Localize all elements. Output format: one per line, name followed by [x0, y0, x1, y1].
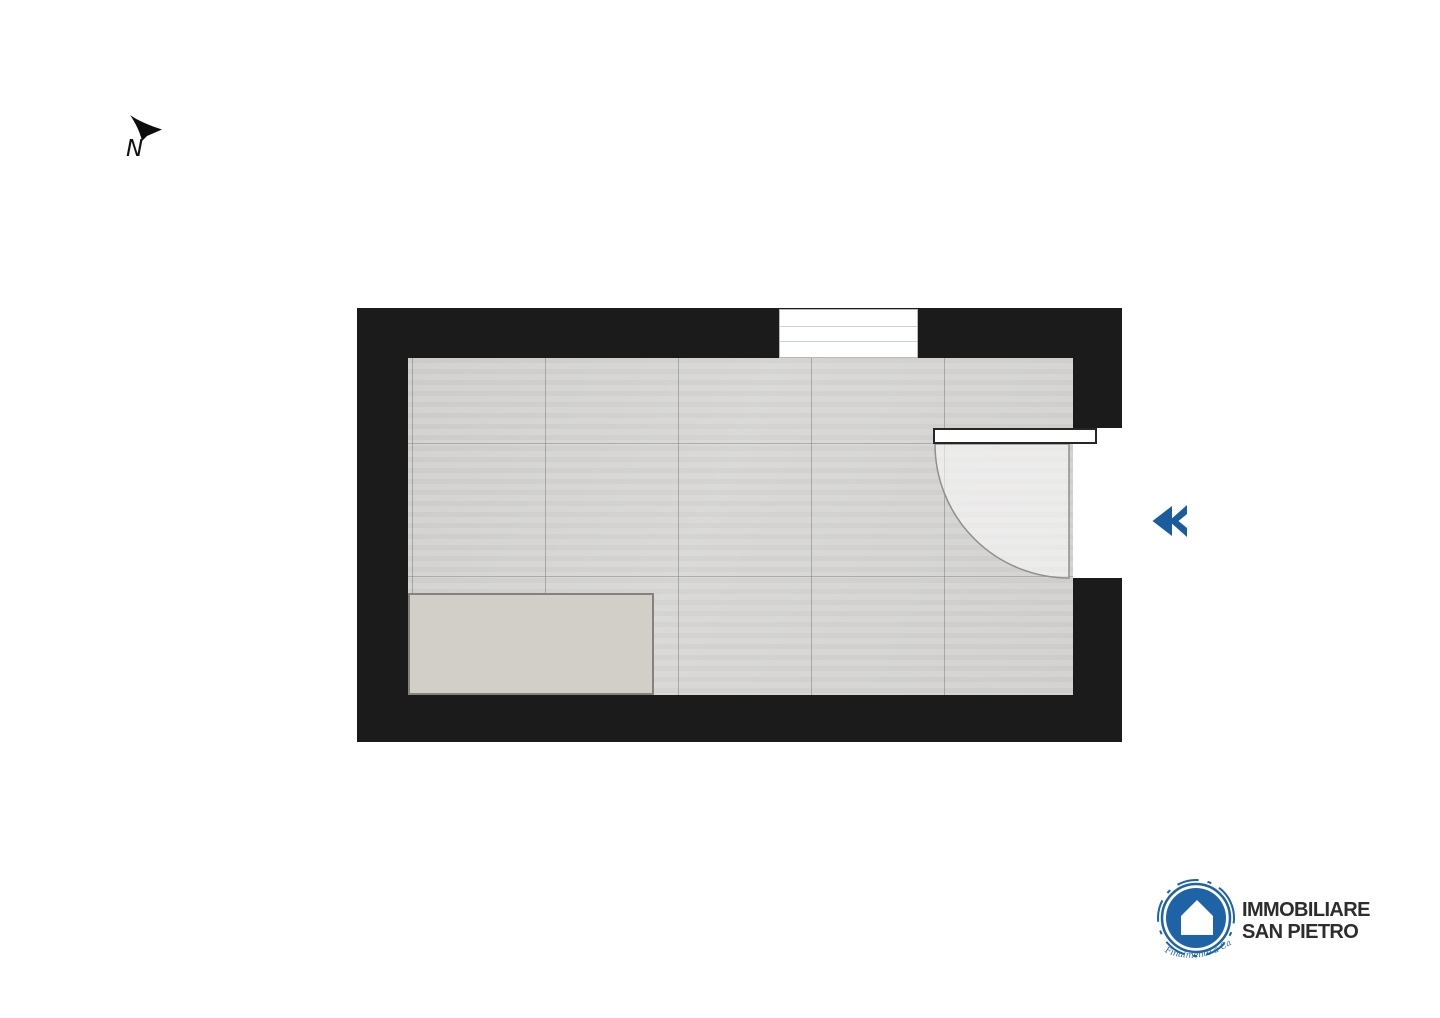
window [779, 309, 918, 358]
floor-plan [357, 308, 1122, 742]
furniture-block [408, 593, 654, 695]
window-pane-line [780, 341, 917, 342]
logo-house-icon: Finalmente a Casa [1156, 876, 1238, 972]
logo-name-line1: IMMOBILIARE [1242, 899, 1370, 921]
agency-logo: Finalmente a Casa IMMOBILIARE SAN PIETRO [1156, 876, 1386, 972]
north-label: N [126, 136, 143, 162]
double-chevron-left-icon [1149, 501, 1189, 541]
door-opening [1073, 428, 1122, 578]
north-compass: N [124, 112, 172, 168]
previous-image-button[interactable] [1149, 501, 1189, 541]
window-pane-line [780, 326, 917, 327]
logo-text: IMMOBILIARE SAN PIETRO [1242, 899, 1370, 943]
door-leaf [933, 428, 1097, 444]
page: N Finalmente a Casa [0, 0, 1440, 1018]
logo-name-line2: SAN PIETRO [1242, 921, 1370, 943]
